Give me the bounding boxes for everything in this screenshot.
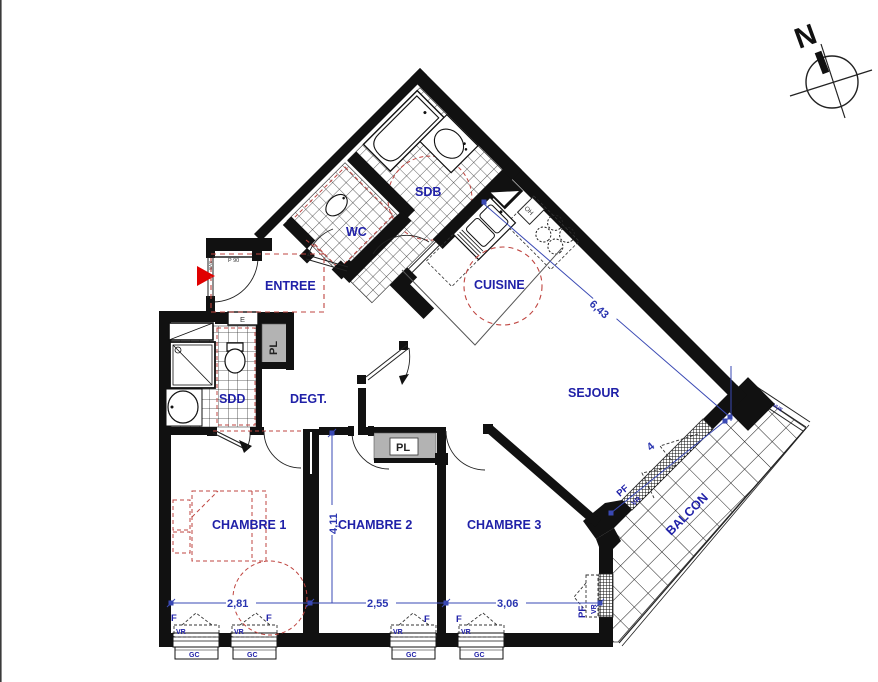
svg-text:GC: GC [247, 652, 258, 659]
svg-text:F: F [456, 614, 462, 625]
svg-text:VR: VR [393, 629, 403, 636]
svg-text:DEGT.: DEGT. [290, 392, 327, 406]
svg-text:F: F [424, 614, 430, 625]
svg-text:SAS: SAS [208, 261, 213, 270]
svg-text:CHAMBRE 1: CHAMBRE 1 [212, 518, 286, 532]
svg-text:VR: VR [461, 629, 471, 636]
svg-text:GC: GC [189, 652, 200, 659]
svg-text:WC: WC [346, 225, 367, 239]
svg-text:VR: VR [234, 629, 244, 636]
svg-text:GC: GC [474, 652, 485, 659]
svg-text:2,55: 2,55 [367, 598, 388, 610]
svg-text:F: F [266, 613, 272, 624]
svg-text:PL: PL [396, 442, 410, 454]
svg-text:F: F [171, 613, 177, 624]
svg-text:SEJOUR: SEJOUR [568, 386, 619, 400]
svg-text:P 90: P 90 [228, 258, 239, 264]
svg-text:SDD: SDD [219, 392, 245, 406]
svg-text:PL: PL [268, 341, 280, 355]
svg-text:3,06: 3,06 [497, 598, 518, 610]
svg-text:CHAMBRE 2: CHAMBRE 2 [338, 518, 412, 532]
svg-text:VR: VR [591, 604, 598, 614]
svg-text:PF: PF [577, 606, 588, 618]
svg-text:SDB: SDB [415, 185, 441, 199]
svg-text:E: E [240, 315, 245, 324]
svg-text:CHAMBRE 3: CHAMBRE 3 [467, 518, 541, 532]
svg-text:VR: VR [176, 629, 186, 636]
svg-text:2,81: 2,81 [227, 598, 248, 610]
svg-text:GC: GC [406, 652, 417, 659]
svg-text:CUISINE: CUISINE [474, 278, 525, 292]
svg-text:ENTREE: ENTREE [265, 279, 316, 293]
